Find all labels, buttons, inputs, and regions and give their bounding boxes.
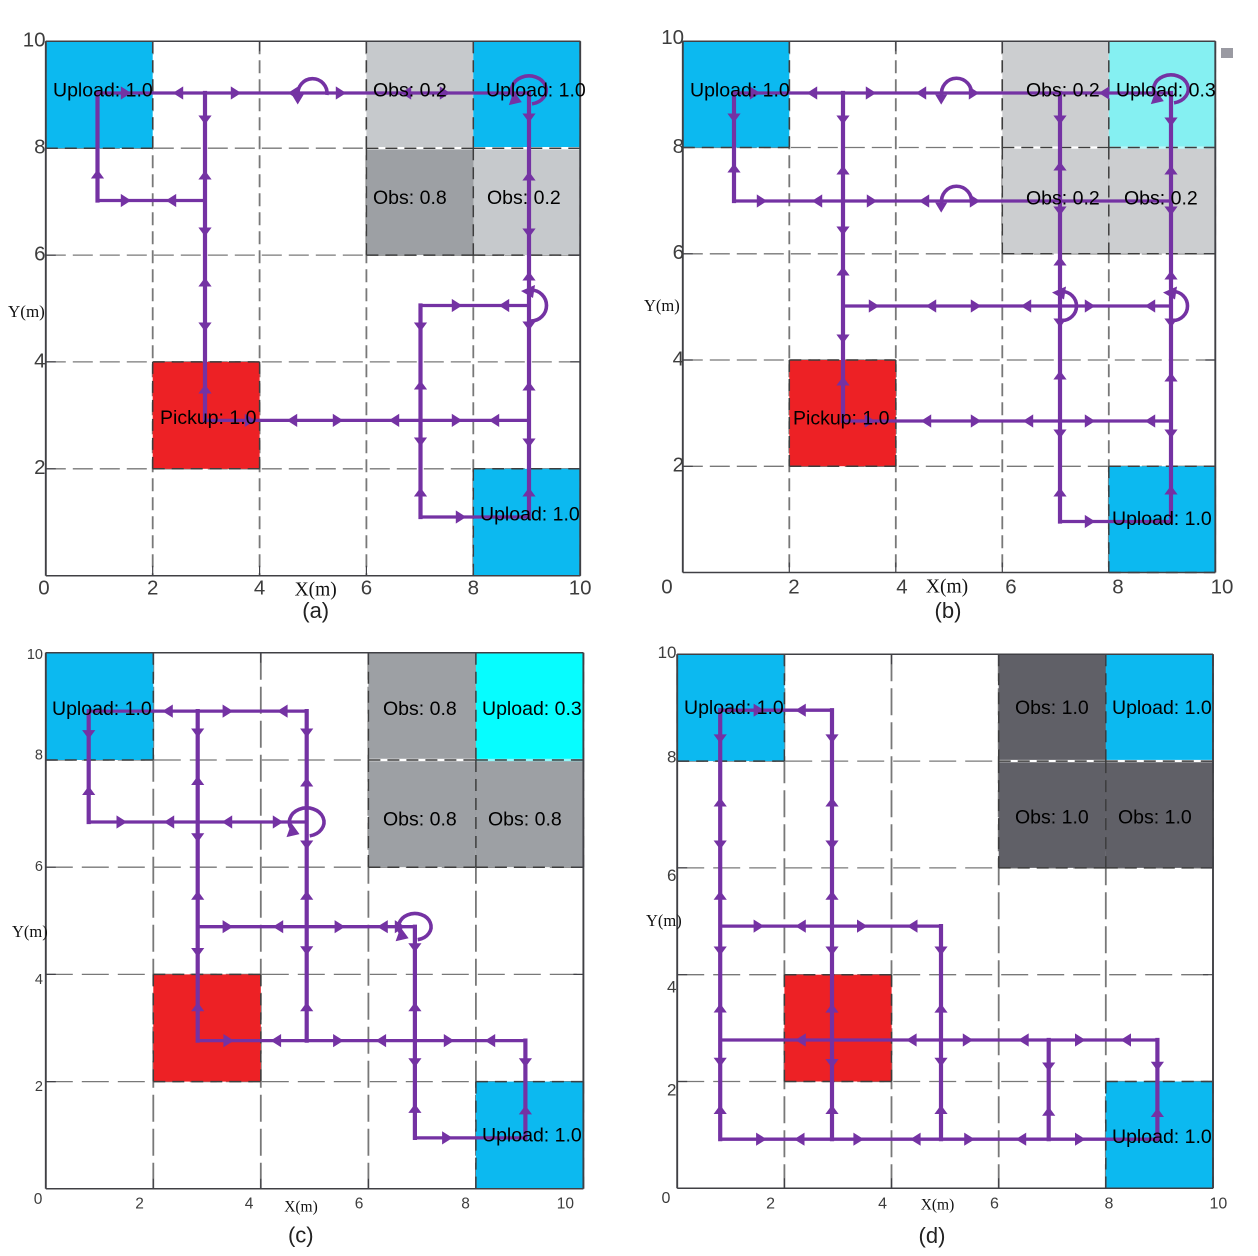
svg-text:10: 10	[661, 26, 684, 49]
svg-text:X(m): X(m)	[926, 576, 968, 597]
svg-text:Upload: 1.0: Upload: 1.0	[53, 80, 153, 102]
svg-text:8: 8	[461, 1196, 470, 1213]
svg-text:6: 6	[34, 243, 45, 266]
svg-text:10: 10	[1211, 575, 1234, 598]
svg-text:(a): (a)	[302, 598, 329, 623]
svg-text:Pickup: 1.0: Pickup: 1.0	[160, 407, 257, 429]
svg-text:4: 4	[667, 977, 676, 996]
svg-text:Obs: 0.8: Obs: 0.8	[383, 698, 457, 720]
svg-text:10: 10	[658, 643, 677, 662]
svg-text:(c): (c)	[288, 1222, 314, 1247]
svg-text:8: 8	[34, 136, 45, 159]
svg-text:0: 0	[661, 575, 672, 598]
svg-text:2: 2	[34, 456, 45, 479]
svg-text:Obs: 1.0: Obs: 1.0	[1118, 807, 1192, 829]
svg-text:2: 2	[147, 576, 158, 599]
svg-text:Obs: 0.8: Obs: 0.8	[373, 187, 447, 209]
svg-text:8: 8	[1112, 575, 1123, 598]
svg-text:6: 6	[361, 576, 372, 599]
svg-text:8: 8	[1105, 1196, 1114, 1213]
svg-text:2: 2	[766, 1196, 775, 1213]
svg-text:Upload: 1.0: Upload: 1.0	[1112, 1126, 1212, 1148]
svg-text:2: 2	[35, 1079, 43, 1095]
svg-text:Obs: 0.2: Obs: 0.2	[1124, 188, 1198, 210]
svg-text:4: 4	[254, 576, 265, 599]
svg-text:Upload: 1.0: Upload: 1.0	[486, 80, 586, 102]
svg-text:Upload: 1.0: Upload: 1.0	[684, 697, 784, 719]
svg-text:(b): (b)	[935, 598, 962, 623]
svg-text:Obs: 0.2: Obs: 0.2	[373, 80, 447, 102]
svg-text:Obs: 0.2: Obs: 0.2	[1026, 188, 1100, 210]
svg-text:0: 0	[34, 1191, 43, 1208]
svg-text:Upload: 1.0: Upload: 1.0	[1112, 697, 1212, 719]
svg-text:Obs: 0.8: Obs: 0.8	[383, 809, 457, 831]
svg-text:Upload: 1.0: Upload: 1.0	[1112, 508, 1212, 530]
svg-text:X(m): X(m)	[921, 1197, 955, 1214]
svg-text:(d): (d)	[919, 1223, 946, 1248]
svg-text:10: 10	[27, 647, 43, 663]
svg-text:4: 4	[878, 1196, 887, 1213]
svg-text:2: 2	[788, 575, 799, 598]
svg-text:6: 6	[667, 866, 676, 885]
svg-text:Obs: 0.2: Obs: 0.2	[1026, 80, 1100, 102]
svg-text:4: 4	[673, 347, 684, 370]
svg-text:0: 0	[662, 1190, 671, 1207]
svg-text:Y(m): Y(m)	[644, 296, 680, 315]
svg-text:Obs: 0.2: Obs: 0.2	[487, 187, 561, 209]
svg-text:2: 2	[673, 454, 684, 477]
svg-text:Y(m): Y(m)	[8, 302, 45, 321]
svg-text:2: 2	[135, 1196, 144, 1213]
svg-text:Upload: 1.0: Upload: 1.0	[690, 80, 790, 102]
svg-text:4: 4	[896, 575, 907, 598]
svg-text:8: 8	[667, 747, 676, 766]
svg-text:Upload: 0.3: Upload: 0.3	[482, 698, 582, 720]
svg-text:0: 0	[38, 576, 49, 599]
svg-text:10: 10	[23, 29, 46, 52]
svg-text:Upload: 0.3: Upload: 0.3	[1116, 80, 1216, 102]
svg-text:Upload: 1.0: Upload: 1.0	[482, 1125, 582, 1147]
svg-text:6: 6	[990, 1196, 999, 1213]
svg-text:Obs: 1.0: Obs: 1.0	[1015, 807, 1089, 829]
svg-text:6: 6	[1005, 575, 1016, 598]
svg-text:4: 4	[34, 349, 45, 372]
svg-text:10: 10	[569, 576, 592, 599]
svg-text:8: 8	[468, 576, 479, 599]
svg-text:Upload: 1.0: Upload: 1.0	[480, 504, 580, 526]
svg-text:10: 10	[1210, 1196, 1228, 1213]
svg-text:4: 4	[245, 1196, 254, 1213]
svg-text:4: 4	[35, 972, 43, 988]
svg-text:6: 6	[35, 859, 43, 875]
svg-text:Obs: 1.0: Obs: 1.0	[1015, 697, 1089, 719]
svg-text:X(m): X(m)	[284, 1199, 318, 1216]
svg-text:6: 6	[355, 1196, 364, 1213]
svg-text:10: 10	[557, 1196, 575, 1213]
svg-text:Y(m): Y(m)	[12, 922, 48, 941]
svg-text:8: 8	[35, 747, 43, 763]
svg-text:6: 6	[673, 241, 684, 264]
svg-text:Upload: 1.0: Upload: 1.0	[52, 698, 152, 720]
svg-text:8: 8	[673, 135, 684, 158]
svg-text:Obs: 0.8: Obs: 0.8	[488, 809, 562, 831]
svg-text:2: 2	[667, 1080, 676, 1099]
svg-text:Pickup: 1.0: Pickup: 1.0	[793, 408, 890, 430]
svg-text:Y(m): Y(m)	[646, 911, 682, 930]
